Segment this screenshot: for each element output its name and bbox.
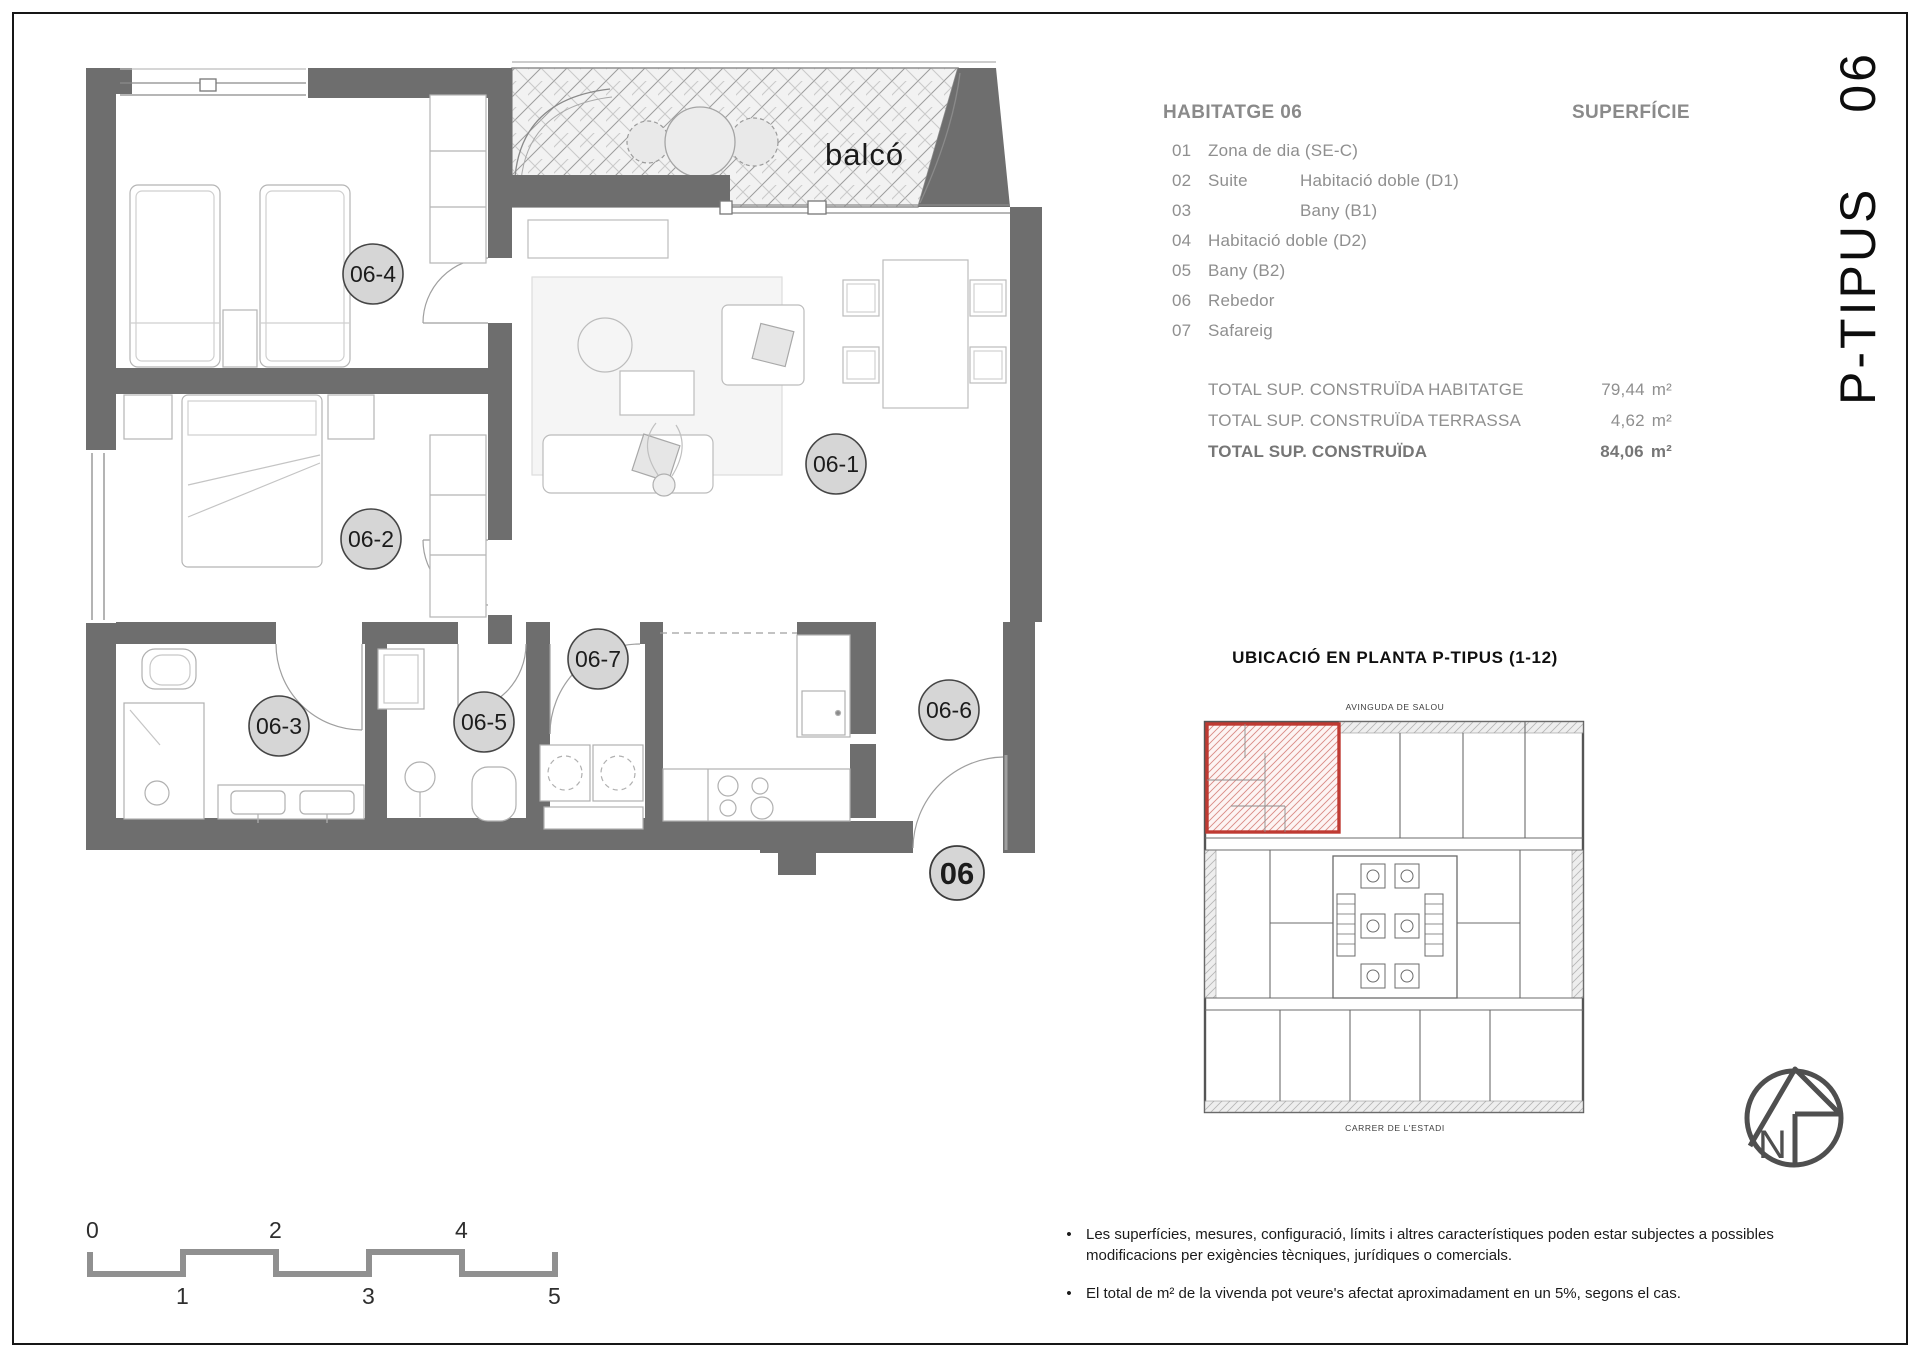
legend-title: HABITATGE 06: [1163, 102, 1302, 124]
legend-item: 03Bany (B1): [1163, 196, 1690, 226]
svg-text:0: 0: [86, 1217, 99, 1243]
svg-text:4: 4: [455, 1217, 468, 1243]
svg-text:06-6: 06-6: [926, 697, 972, 723]
total-row: TOTAL SUP. CONSTRUÏDA TERRASSA4,62m²: [1208, 405, 1672, 436]
total-row: TOTAL SUP. CONSTRUÏDA HABITATGE79,44m²: [1208, 374, 1672, 405]
room-tag-06-4: 06-4: [343, 244, 403, 304]
scale-bar: 0 2 4 1 3 5: [78, 1212, 570, 1314]
balcony-label: balcó: [825, 137, 904, 172]
floor-plan: balcó: [60, 55, 1045, 925]
site-plan: AVINGUDA DE SALOU CARRER DE L'ESTADI: [1185, 698, 1605, 1138]
area-totals: TOTAL SUP. CONSTRUÏDA HABITATGE79,44m² T…: [1208, 374, 1672, 467]
site-plan-core: [1333, 856, 1457, 998]
legend: HABITATGE 06 SUPERFÍCIE 01Zona de dia (S…: [1163, 102, 1690, 346]
svg-text:1: 1: [176, 1283, 189, 1309]
legend-item: 01Zona de dia (SE-C): [1163, 136, 1690, 166]
svg-text:06-3: 06-3: [256, 713, 302, 739]
street-bottom-label: CARRER DE L'ESTADI: [1345, 1123, 1445, 1133]
svg-text:06-5: 06-5: [461, 709, 507, 735]
sheet-code-number: 06: [1829, 51, 1887, 113]
total-row-grand: TOTAL SUP. CONSTRUÏDA84,06m²: [1208, 436, 1672, 467]
bullet-icon: •: [1052, 1283, 1086, 1304]
svg-text:5: 5: [548, 1283, 561, 1309]
highlighted-unit: [1207, 724, 1339, 832]
superficie-heading: SUPERFÍCIE: [1572, 102, 1690, 124]
svg-text:06-7: 06-7: [575, 646, 621, 672]
room-tag-06-5: 06-5: [454, 692, 514, 752]
svg-text:2: 2: [269, 1217, 282, 1243]
note-item: • Les superfícies, mesures, configuració…: [1052, 1224, 1792, 1267]
note-item: • El total de m² de la vivenda pot veure…: [1052, 1283, 1792, 1304]
disclaimer-notes: • Les superfícies, mesures, configuració…: [1052, 1224, 1792, 1320]
furniture-bedrooms: [124, 95, 486, 617]
plan-sheet: balcó: [0, 0, 1920, 1357]
room-tag-06-1: 06-1: [806, 434, 866, 494]
svg-text:06-2: 06-2: [348, 526, 394, 552]
entry-tag-06: 06: [930, 846, 984, 900]
room-tag-06-6: 06-6: [919, 680, 979, 740]
legend-item: 06Rebedor: [1163, 286, 1690, 316]
legend-item: 05Bany (B2): [1163, 256, 1690, 286]
room-tag-06-7: 06-7: [568, 629, 628, 689]
sheet-code-prefix: P-TIPUS: [1829, 187, 1887, 405]
street-top-label: AVINGUDA DE SALOU: [1346, 702, 1445, 712]
site-plan-building: [1205, 722, 1583, 1112]
north-mark: N: [1736, 1054, 1852, 1184]
svg-text:06-1: 06-1: [813, 451, 859, 477]
svg-text:06: 06: [940, 856, 974, 891]
room-tag-06-2: 06-2: [341, 509, 401, 569]
svg-text:3: 3: [362, 1283, 375, 1309]
north-letter: N: [1758, 1123, 1787, 1167]
location-title: UBICACIÓ EN PLANTA P-TIPUS (1-12): [1155, 648, 1635, 668]
legend-item: 04Habitació doble (D2): [1163, 226, 1690, 256]
legend-item: 02SuiteHabitació doble (D1): [1163, 166, 1690, 196]
furniture-living: [528, 220, 1006, 496]
sheet-code: P-TIPUS 06: [1836, 38, 1880, 418]
bullet-icon: •: [1052, 1224, 1086, 1267]
legend-items: 01Zona de dia (SE-C) 02SuiteHabitació do…: [1163, 136, 1690, 346]
svg-text:06-4: 06-4: [350, 261, 396, 287]
legend-item: 07Safareig: [1163, 316, 1690, 346]
room-tag-06-3: 06-3: [249, 696, 309, 756]
